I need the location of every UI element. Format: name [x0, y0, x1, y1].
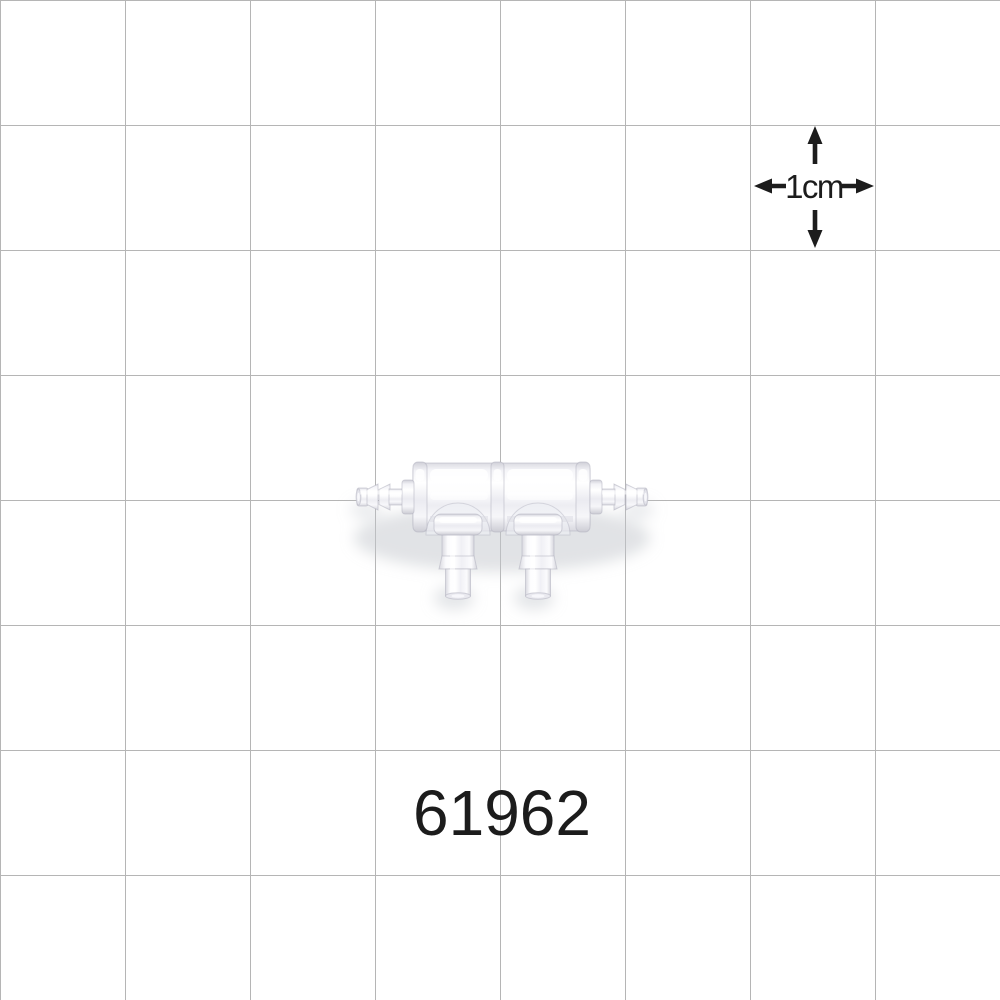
bottom-port-collar-right — [514, 514, 562, 535]
arrow-down-icon — [808, 210, 823, 248]
arrow-right-icon — [842, 179, 874, 194]
catalog-product-image: 1cm — [0, 0, 1000, 1000]
bottom-port-collar-left — [434, 514, 482, 535]
part-number: 61962 — [2, 781, 1000, 845]
scale-label: 1cm — [785, 168, 843, 205]
product-image — [350, 448, 654, 624]
arrow-left-icon — [754, 179, 786, 194]
scale-indicator: 1cm — [748, 120, 880, 254]
arrow-up-icon — [808, 126, 823, 164]
